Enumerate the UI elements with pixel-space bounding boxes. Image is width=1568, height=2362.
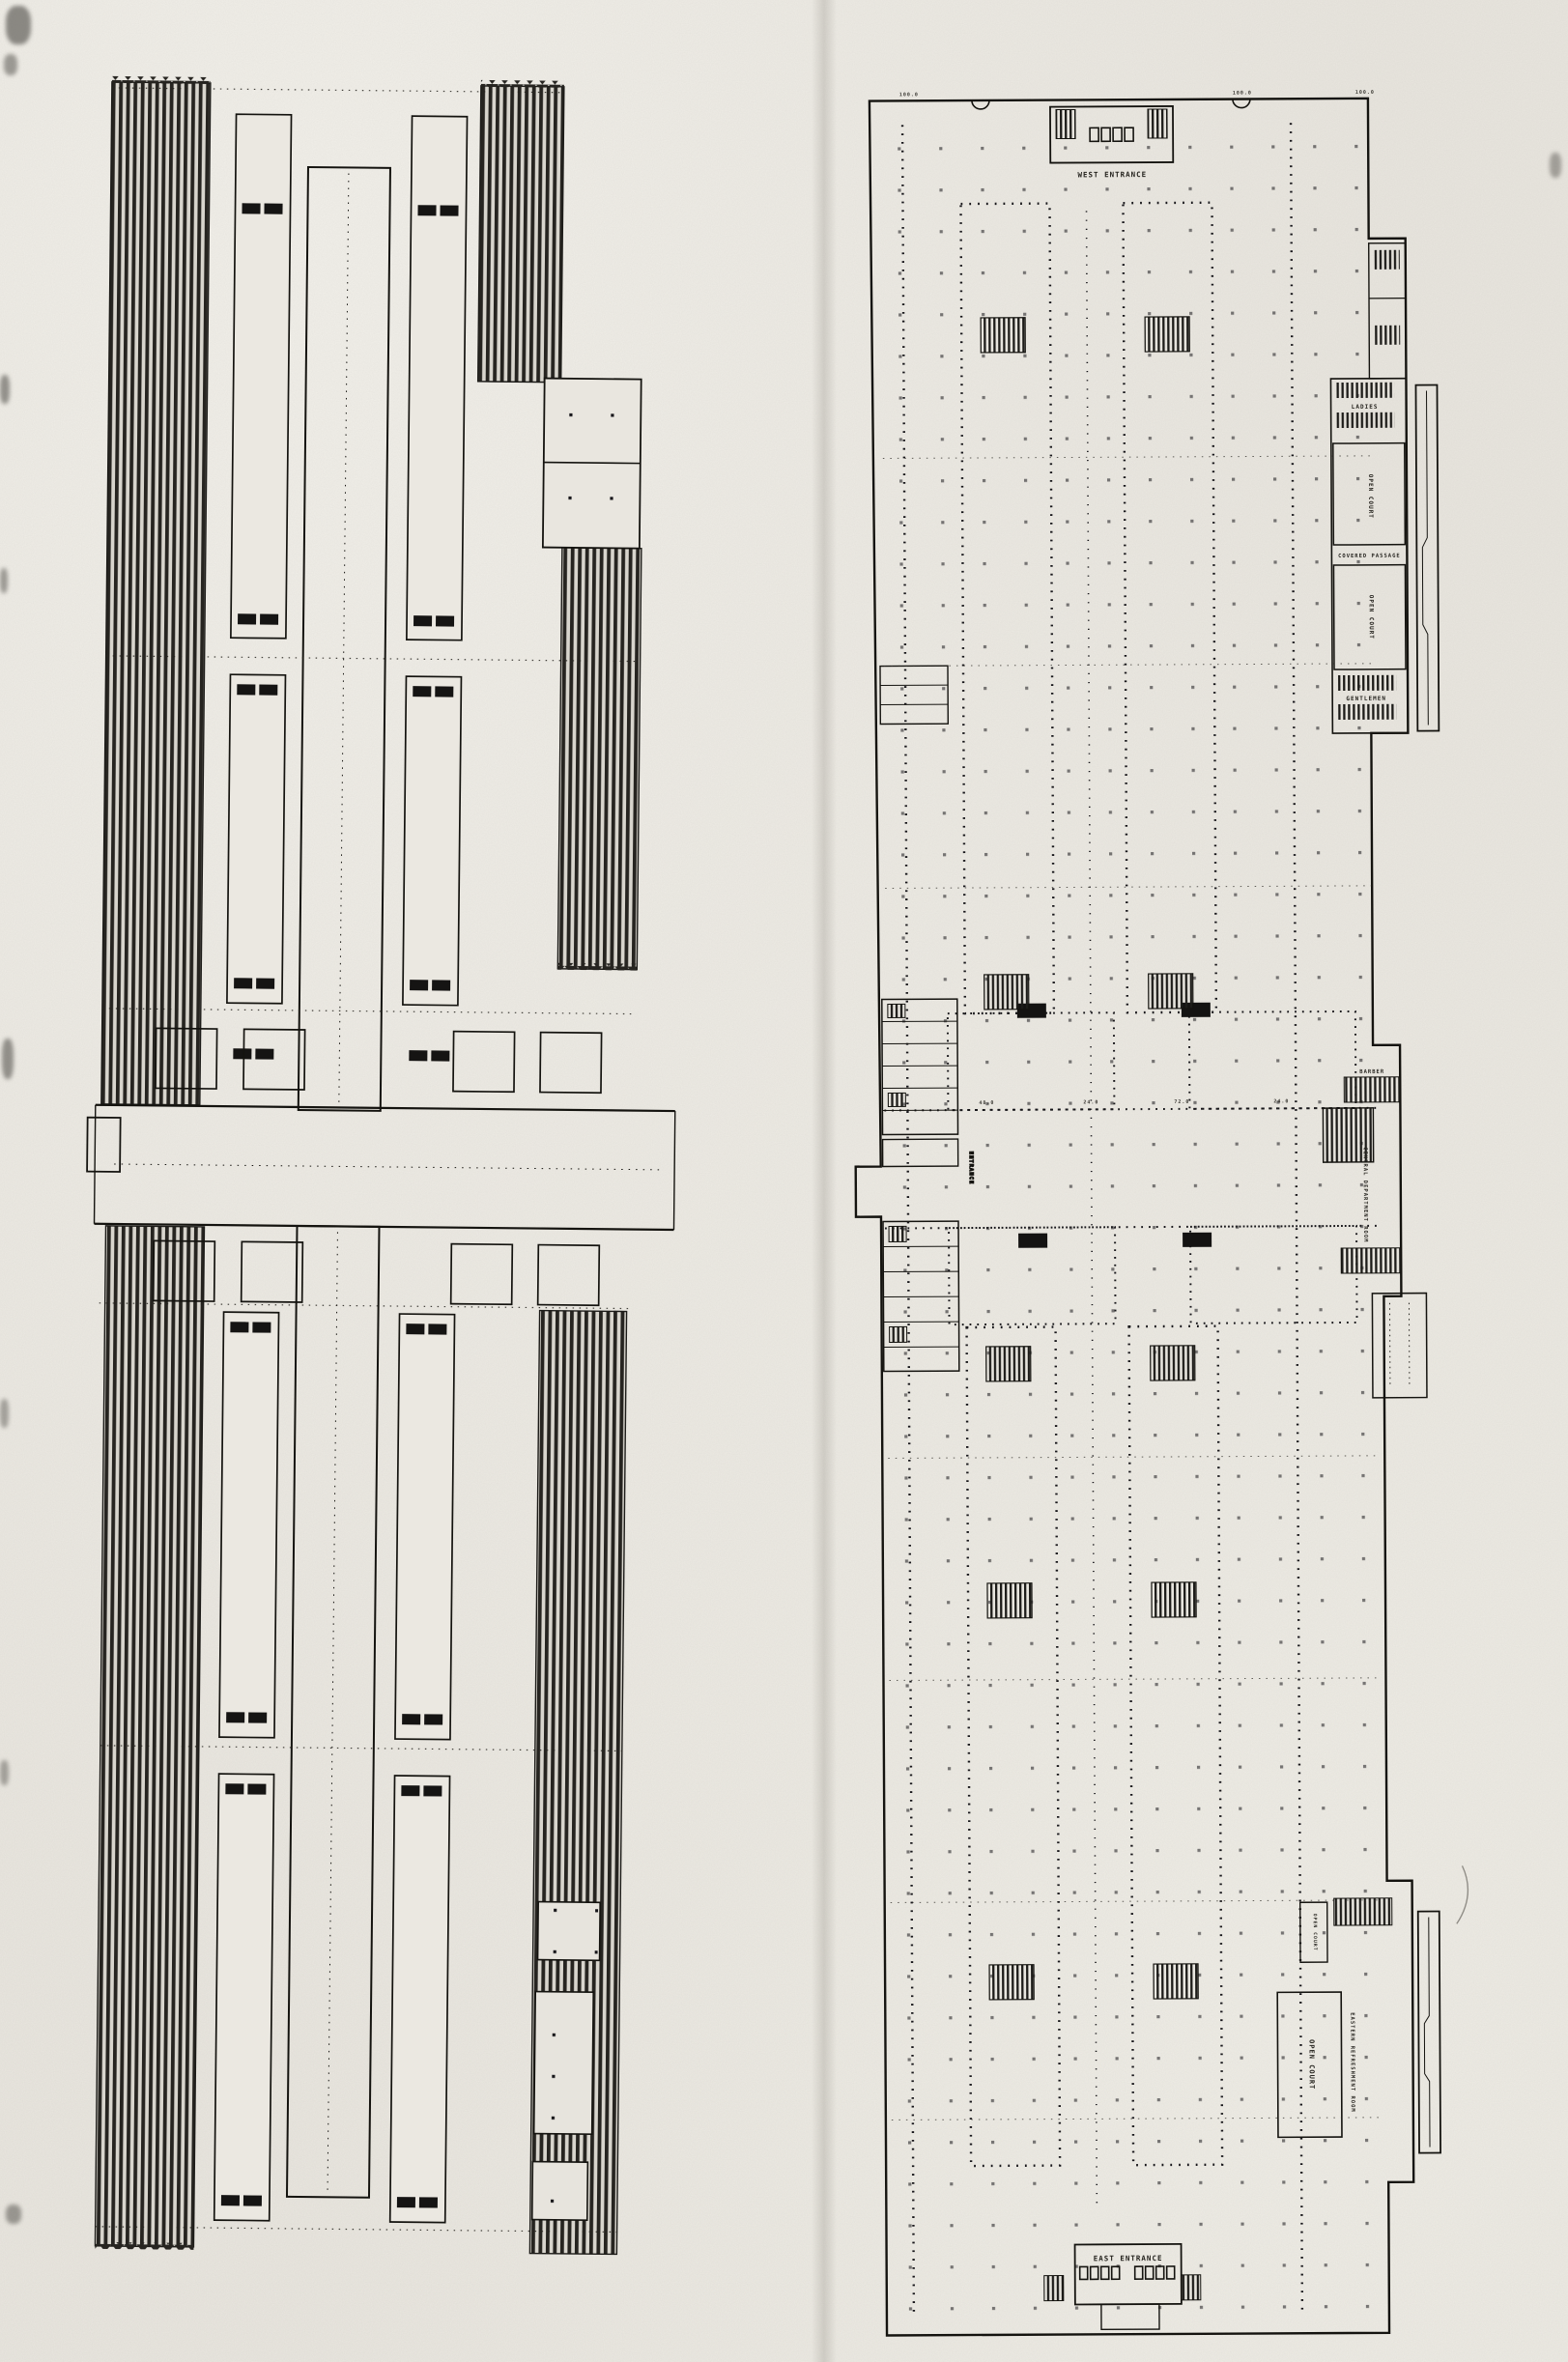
svg-text:72.0: 72.0 (1174, 1099, 1189, 1105)
top-right-annex (543, 379, 641, 549)
svg-text:100.0: 100.0 (1233, 90, 1252, 96)
ink-smudge (0, 1760, 9, 1785)
ground-plan-panel: WEST ENTRANCE EAST ENTRANCE LADIES OPEN … (837, 83, 1486, 2356)
ink-smudge (6, 6, 31, 44)
open-court-3-label: OPEN COURT (1312, 1914, 1318, 1951)
open-court-2-label: OPEN COURT (1368, 595, 1375, 640)
svg-text:48.0: 48.0 (979, 1100, 994, 1106)
svg-text:100.0: 100.0 (1355, 90, 1375, 96)
svg-text:100.0: 100.0 (899, 92, 919, 98)
east-entrance-label: EAST ENTRANCE (1094, 2254, 1163, 2262)
ladies-label: LADIES (1352, 404, 1379, 411)
covered-passage-label: COVERED PASSAGE (1338, 554, 1401, 559)
svg-text:24.0: 24.0 (1083, 1099, 1098, 1105)
side-entrance-label: ENTRANCE (968, 1152, 974, 1185)
gentlemen-label: GENTLEMEN (1346, 696, 1386, 702)
barber-label: BARBER (1359, 1069, 1384, 1075)
gallery-halls (214, 114, 468, 2222)
ink-smudge (1550, 153, 1561, 178)
outside-gallery-strip (1415, 384, 1439, 730)
svg-text:24.0: 24.0 (1273, 1098, 1289, 1104)
hatched-band-left (89, 76, 216, 2250)
fold-crease (812, 0, 837, 2362)
west-entrance-label: WEST ENTRANCE (1077, 170, 1147, 179)
pencil-mark (1457, 1865, 1468, 1923)
scanned-blueprint-sheet: { "document": { "kind": "scanned archite… (0, 0, 1568, 2362)
open-court-4-label: OPEN COURT (1307, 2039, 1315, 2090)
ink-smudge (6, 2205, 21, 2224)
ink-smudge (0, 375, 10, 404)
eastern-refreshment-label: EASTERN REFRESHMENT ROOM (1349, 2012, 1355, 2113)
ink-smudge (0, 568, 8, 593)
ink-smudge (2, 1039, 14, 1079)
gallery-plan-panel (73, 57, 715, 2305)
ink-smudge (4, 54, 17, 75)
checkroom-annex (1369, 243, 1407, 379)
open-court-1-label: OPEN COURT (1367, 474, 1374, 519)
central-department-label: CENTRAL DEPARTMENT ROOM (1362, 1147, 1369, 1242)
central-nave (287, 167, 390, 2198)
ink-smudge (0, 1399, 9, 1428)
